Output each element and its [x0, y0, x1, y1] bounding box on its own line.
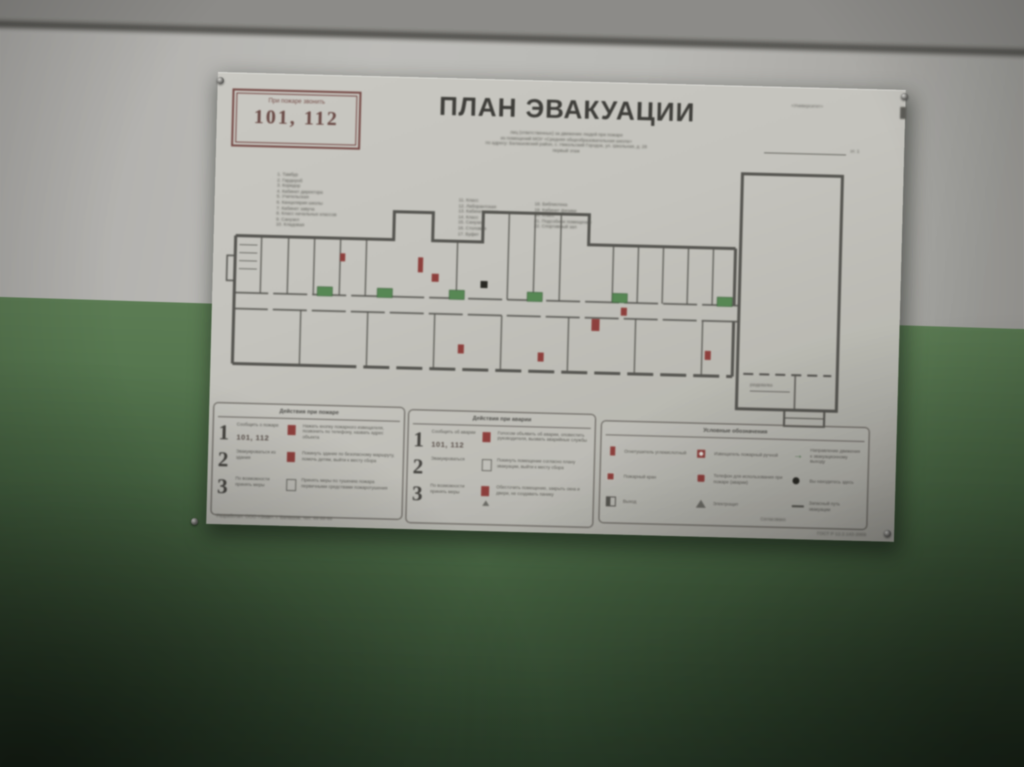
warning-triangle-icon	[696, 499, 706, 507]
step-text: Сообщить о пожаре	[237, 422, 285, 429]
legend-accident-row: 3 По возможности принять меры Обесточить…	[412, 483, 589, 511]
step-phone-numbers: 101, 112	[431, 440, 464, 450]
symbol-label: Направление движения к эвакуационному вы…	[810, 448, 863, 466]
step-text: По возможности принять меры	[235, 476, 283, 488]
evacuate-icon	[482, 459, 492, 471]
step-detail: Принять меры по тушению пожара первичным…	[301, 478, 397, 491]
legend-accident-row: 1 Сообщить об аварии 101, 112 Голосом об…	[413, 428, 590, 456]
legend-accident-actions: Действия при аварии 1 Сообщить об аварии…	[405, 409, 596, 528]
room-list-left: 1. Тамбур 2. Гардероб 3. Коридор 4. Каби…	[276, 172, 372, 230]
fire-equipment-icons	[338, 253, 714, 366]
extinguish-icon	[286, 479, 296, 491]
step-detail: Нажать кнопку пожарного извещателя, позв…	[302, 423, 398, 442]
step-number: 2	[412, 456, 428, 479]
symbol-item: Пожарный кран	[606, 466, 690, 487]
symbol-label: Вы находитесь здесь	[809, 478, 862, 485]
symbol-item: Выход	[606, 491, 690, 512]
symbol-label: Электрощит	[713, 501, 788, 508]
screw-bottom-right	[884, 530, 891, 537]
step-detail: Обесточить помещение, закрыть окна и две…	[496, 485, 588, 498]
symbol-item: Телефон для использования при пожаре (ав…	[696, 469, 788, 490]
step-text: Эвакуироваться	[431, 456, 479, 463]
legend-fire-row: 3 По возможности принять меры Принять ме…	[217, 476, 398, 504]
symbol-label: Телефон для использования при пожаре (ав…	[713, 473, 788, 486]
legend-symbols: Условные обозначения Огнетушитель углеки…	[598, 420, 870, 530]
mitigate-icon	[481, 486, 489, 496]
evacuation-plan-board: При пожаре звонить 101, 112 ПЛАН ЭВАКУАЦ…	[206, 72, 906, 542]
phone-call-icon	[288, 425, 296, 435]
you-are-here-marker	[480, 281, 487, 288]
photo-of-wall: При пожаре звонить 101, 112 ПЛАН ЭВАКУАЦ…	[0, 0, 1024, 767]
legend-fire-row: 2 Эвакуироваться из здания Покинуть здан…	[218, 449, 399, 477]
solid-arrow-icon: →	[793, 451, 807, 460]
screw-top-right	[901, 93, 908, 100]
symbol-item: Запасный путь эвакуации	[792, 496, 862, 517]
step-detail: Покинуть помещение согласно плану эвакуа…	[497, 458, 589, 471]
symbol-label: Запасный путь эвакуации	[809, 501, 862, 513]
symbol-label: Выход	[623, 499, 690, 506]
symbol-item: → Направление движения к эвакуационному …	[793, 446, 863, 467]
step-phone-numbers: 101, 112	[236, 433, 269, 443]
legend-accident-row: 2 Эвакуироваться Покинуть помещение согл…	[412, 456, 589, 484]
legend-accident-title: Действия при аварии	[413, 412, 591, 429]
symbol-item: Извещатель пожарный ручной	[697, 444, 789, 465]
screw-top-left	[217, 77, 224, 84]
fire-hydrant-icon	[606, 472, 614, 480]
step-number: 2	[218, 449, 234, 472]
evacuate-icon	[287, 452, 295, 462]
symbol-label: Пожарный кран	[623, 474, 690, 481]
step-detail: Покинуть здание по безопасному маршруту,…	[302, 451, 398, 464]
step-text: Сообщить об аварии	[432, 429, 480, 436]
fire-phone-icon	[697, 475, 704, 482]
step-text: Эвакуироваться из здания	[236, 449, 284, 461]
screw-bottom-left	[191, 518, 198, 525]
legend-fire-actions: Действия при пожаре 1 Сообщить о пожаре …	[210, 402, 405, 520]
warning-triangle-icon	[482, 501, 489, 507]
symbol-label: Огнетушитель углекислотный	[624, 449, 691, 456]
dashed-arrow-icon	[792, 505, 804, 507]
fire-extinguisher-icon	[610, 446, 615, 455]
legend-fire-row: 1 Сообщить о пожаре 101, 112 Нажать кноп…	[218, 421, 399, 449]
manual-call-point-icon	[697, 449, 705, 457]
step-detail: Голосом объявить об аварии, оповестить р…	[497, 430, 589, 443]
step-number: 3	[412, 483, 428, 506]
exit-door-icon	[606, 496, 616, 506]
legend-fire-title: Действия при пожаре	[218, 405, 400, 422]
phone-call-icon	[482, 432, 490, 442]
step-number: 1	[218, 421, 234, 444]
room-list-middle: 11. Класс 12. Лаборантская 13. Кабинет х…	[458, 197, 539, 238]
you-are-here-icon	[792, 477, 799, 484]
step-number: 3	[217, 476, 233, 499]
symbol-item: Огнетушитель углекислотный	[607, 441, 691, 462]
step-number: 1	[413, 428, 429, 451]
symbol-item: Вы находитесь здесь	[792, 471, 862, 492]
step-text: По возможности принять меры	[430, 483, 478, 495]
symbol-label: Извещатель пожарный ручной	[714, 451, 789, 458]
room-list-right: 18. Библиотека 19. Кабинет физики 20. Кл…	[534, 201, 615, 231]
symbol-item: Электрощит	[696, 494, 788, 515]
